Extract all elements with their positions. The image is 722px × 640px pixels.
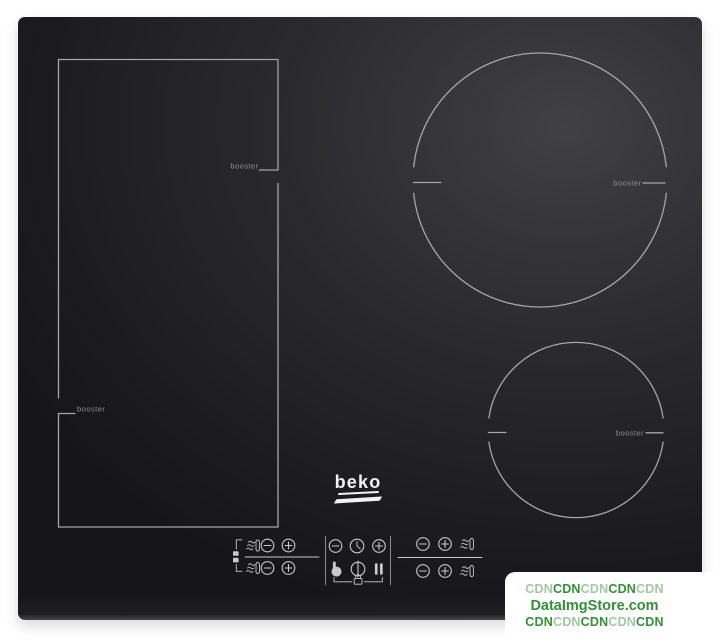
control-panel [233,536,482,585]
watermark-cdn-segment: CDN [636,582,664,596]
watermark: CDNCDNCDNCDNCDN DataImgStore.com CDNCDNC… [505,572,722,640]
watermark-cdn-segment: CDN [608,582,636,596]
zone-bottom-right-plus-button[interactable] [439,565,452,578]
flex-top-heat-indicator-icon [247,540,260,551]
timer-clock-button[interactable] [350,539,364,553]
beko-logo-text: beko [335,473,382,491]
zone-top-right-heat-indicator-icon [461,539,474,550]
flex-bottom-minus-button[interactable] [261,562,274,575]
zone-top-right-booster-label: booster [613,179,641,188]
zone-bottom-right-booster-label: booster [616,429,644,438]
bridge-link-icon [233,540,242,572]
watermark-cdn-segment: CDN [553,582,581,596]
watermark-cdn-segment: CDN [553,615,581,629]
watermark-cdn-segment: CDN [636,615,664,629]
watermark-cdn-segment: CDN [525,615,553,629]
flex-bottom-plus-button[interactable] [282,562,295,575]
watermark-domain: DataImgStore.com [530,598,658,614]
zone-arc-lower [489,442,663,517]
watermark-cdn-segment: CDN [525,582,553,596]
cooking-zone-top-right: booster [414,53,667,307]
zone-arc-lower [414,193,667,307]
watermark-line-1: CDNCDNCDNCDNCDN [525,582,663,597]
zone-bottom-right-heat-indicator-icon [461,566,474,577]
beko-logo: beko [330,473,386,502]
flex-top-minus-button[interactable] [261,539,274,552]
zone-arc-upper [489,342,663,417]
timer-plus-button[interactable] [373,540,386,553]
zone-bottom-right-minus-button[interactable] [417,565,430,578]
hob-graphics: booster booster booster booster [0,0,722,640]
pause-button[interactable] [375,563,383,574]
product-image: booster booster booster booster [0,0,722,640]
watermark-line-3: CDNCDNCDNCDNCDN [525,615,663,630]
zone-arc-upper [414,53,667,167]
watermark-cdn-segment: CDN [581,582,609,596]
hand-touch-button[interactable] [332,562,342,577]
flex-top-plus-button[interactable] [282,539,295,552]
watermark-cdn-segment: CDN [581,615,609,629]
flex-bottom-heat-indicator-icon [247,563,260,574]
zone-top-right-plus-button[interactable] [439,538,452,551]
watermark-cdn-segment: CDN [608,615,636,629]
zone-top-right-minus-button[interactable] [417,538,430,551]
flex-zone-booster-bottom-label: booster [77,405,105,414]
timer-minus-button[interactable] [329,540,342,553]
flex-zone-outline [59,60,279,528]
flex-zone-left: booster booster [59,60,279,528]
cooking-zone-bottom-right: booster [489,342,664,517]
flex-zone-booster-top-label: booster [230,162,258,171]
